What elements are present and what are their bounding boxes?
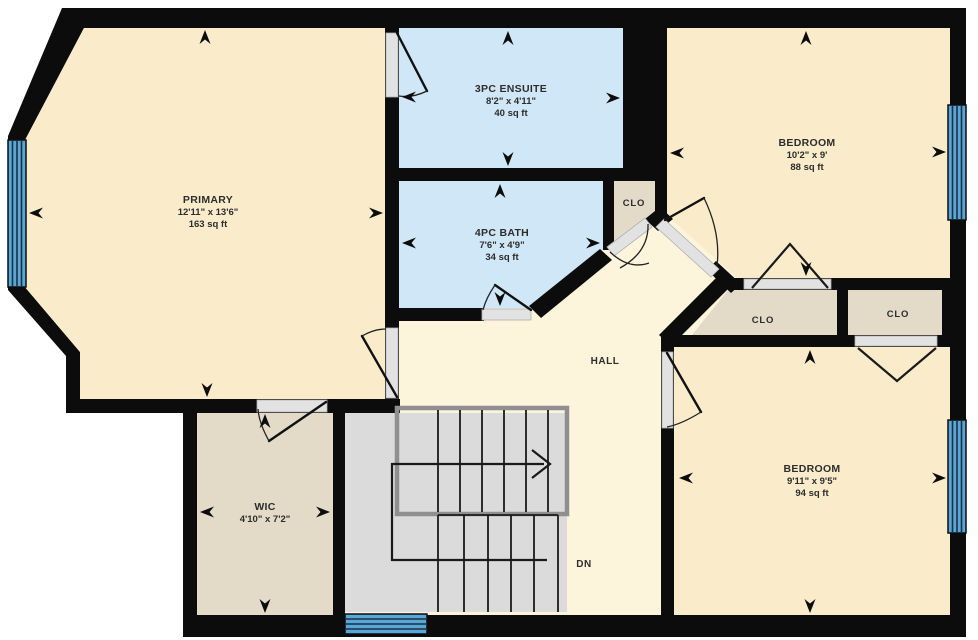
stairs-down-label: DN xyxy=(576,559,591,570)
bedroom2-label: BEDROOM xyxy=(784,463,841,475)
floor-plan-canvas: PRIMARY 12'11" x 13'6" 163 sq ft 3PC ENS… xyxy=(0,0,978,640)
bath-label: 4PC BATH xyxy=(475,227,529,239)
bedroom1-area: 88 sq ft xyxy=(790,162,824,173)
wall-wic-east xyxy=(333,412,345,615)
stairwell-window xyxy=(345,614,427,634)
wall-ensuite-east xyxy=(623,28,667,168)
bedroom2-area: 94 sq ft xyxy=(795,488,829,499)
wall-closet-divider xyxy=(837,290,848,335)
wall-bath-east xyxy=(603,181,614,250)
ensuite-label: 3PC ENSUITE xyxy=(475,83,547,95)
closet3-label: CLO xyxy=(887,309,909,320)
wall-closet3-east xyxy=(942,290,950,335)
bay-window xyxy=(8,140,26,287)
ensuite-area: 40 sq ft xyxy=(494,108,528,119)
bedroom2-window xyxy=(948,420,966,533)
bedroom1-window xyxy=(948,105,966,220)
wic-label: WIC xyxy=(254,501,275,513)
bath-door-opening xyxy=(482,309,531,320)
bath-area: 34 sq ft xyxy=(485,252,519,263)
wic-dims: 4'10" x 7'2" xyxy=(240,514,291,525)
floor-plan: PRIMARY 12'11" x 13'6" 163 sq ft 3PC ENS… xyxy=(0,0,978,640)
wall-bath-south xyxy=(399,308,484,321)
ensuite-door-opening xyxy=(386,33,398,97)
bedroom1-dims: 10'2" x 9' xyxy=(787,150,828,161)
hall-label: HALL xyxy=(591,356,620,367)
primary-label: PRIMARY xyxy=(183,194,233,206)
ensuite-dims: 8'2" x 4'11" xyxy=(486,96,536,107)
wic-door-opening xyxy=(257,400,327,412)
bedroom2-dims: 9'11" x 9'5" xyxy=(787,476,837,487)
closet3-door-opening xyxy=(855,336,937,346)
closet1-label: CLO xyxy=(623,198,645,209)
primary-dims: 12'11" x 13'6" xyxy=(178,207,239,218)
bedroom1-label: BEDROOM xyxy=(779,137,836,149)
bedroom2-door-opening xyxy=(662,352,673,428)
wall-primary-south xyxy=(66,399,400,413)
bath-dims: 7'6" x 4'9" xyxy=(479,240,524,251)
primary-area: 163 sq ft xyxy=(189,219,228,230)
wall-ensuite-south xyxy=(399,168,667,181)
closet2-label: CLO xyxy=(752,315,774,326)
